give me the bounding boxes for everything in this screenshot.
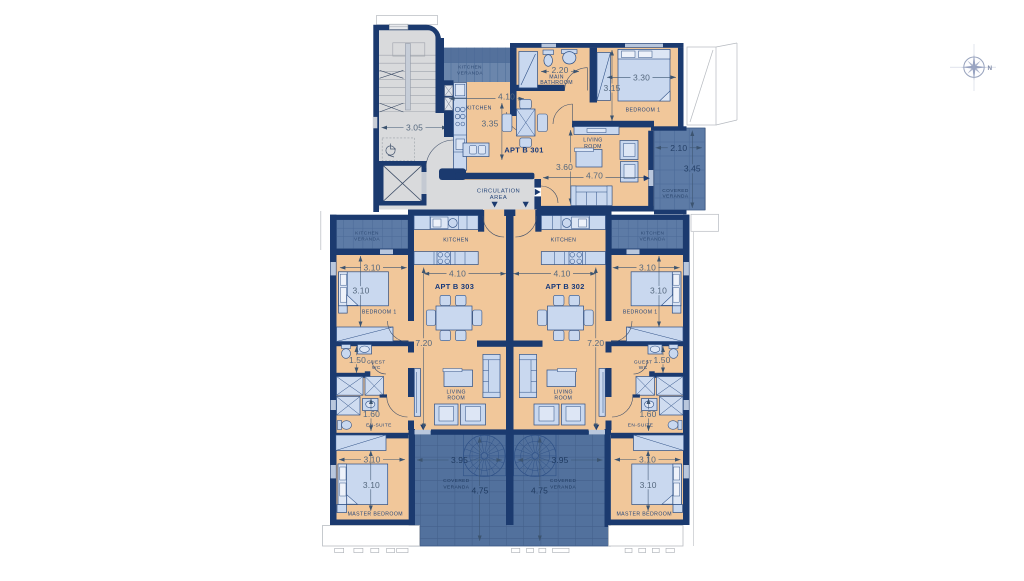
svg-text:VERANDA: VERANDA: [443, 484, 469, 490]
svg-text:MASTER BEDROOM: MASTER BEDROOM: [348, 511, 403, 517]
svg-text:BEDROOM 1: BEDROOM 1: [362, 310, 397, 316]
svg-text:N: N: [988, 65, 993, 72]
svg-text:3.10: 3.10: [650, 286, 667, 296]
svg-text:KITCHEN: KITCHEN: [641, 231, 665, 237]
svg-text:COVERED: COVERED: [443, 478, 470, 484]
svg-text:VERANDA: VERANDA: [354, 237, 380, 243]
svg-text:KITCHEN: KITCHEN: [458, 64, 482, 70]
svg-text:APT B 302: APT B 302: [545, 282, 584, 291]
svg-text:3.10: 3.10: [639, 263, 656, 273]
svg-text:4.10: 4.10: [498, 92, 515, 102]
svg-text:GUEST: GUEST: [634, 359, 653, 365]
svg-text:LIVING: LIVING: [554, 389, 573, 395]
svg-text:COVERED: COVERED: [550, 478, 577, 484]
svg-text:3.10: 3.10: [364, 455, 381, 465]
svg-text:APT B 303: APT B 303: [435, 282, 474, 291]
svg-text:1.50: 1.50: [349, 355, 366, 365]
svg-text:3.30: 3.30: [633, 72, 650, 82]
svg-text:2.10: 2.10: [670, 143, 687, 153]
svg-text:BEDROOM 1: BEDROOM 1: [623, 310, 658, 316]
svg-text:3.95: 3.95: [552, 455, 569, 465]
svg-text:3.10: 3.10: [363, 480, 380, 490]
svg-text:VERANDA: VERANDA: [457, 70, 483, 76]
svg-text:1.50: 1.50: [654, 355, 671, 365]
svg-text:7.20: 7.20: [415, 338, 432, 348]
svg-text:4.75: 4.75: [531, 485, 548, 495]
svg-text:APT B 301: APT B 301: [504, 146, 543, 155]
svg-text:COVERED: COVERED: [662, 188, 689, 194]
svg-text:VERANDA: VERANDA: [550, 484, 576, 490]
svg-text:3.10: 3.10: [353, 286, 370, 296]
svg-text:4.75: 4.75: [472, 485, 489, 495]
svg-text:3.60: 3.60: [556, 162, 573, 172]
svg-text:2.20: 2.20: [552, 65, 569, 75]
svg-text:BEDROOM 1: BEDROOM 1: [626, 107, 661, 113]
svg-text:3.05: 3.05: [406, 123, 423, 133]
svg-text:LIVING: LIVING: [446, 389, 465, 395]
svg-text:3.45: 3.45: [684, 164, 701, 174]
svg-text:3.95: 3.95: [451, 455, 468, 465]
svg-text:ROOM: ROOM: [554, 396, 572, 402]
svg-text:ROOM: ROOM: [447, 396, 465, 402]
svg-text:WC: WC: [639, 365, 648, 371]
svg-text:BATHROOM: BATHROOM: [540, 80, 573, 86]
svg-text:EN-SUITE: EN-SUITE: [628, 423, 654, 429]
svg-text:4.10: 4.10: [554, 269, 571, 279]
svg-text:MASTER BEDROOM: MASTER BEDROOM: [616, 511, 671, 517]
svg-text:KITCHEN: KITCHEN: [551, 238, 577, 244]
svg-text:KITCHEN: KITCHEN: [443, 238, 469, 244]
svg-text:3.10: 3.10: [364, 263, 381, 273]
svg-text:AREA: AREA: [490, 195, 507, 201]
svg-text:KITCHEN: KITCHEN: [466, 106, 492, 112]
svg-text:3.35: 3.35: [482, 119, 499, 129]
svg-text:3.15: 3.15: [604, 83, 621, 93]
svg-text:7.20: 7.20: [587, 338, 604, 348]
svg-text:1.60: 1.60: [363, 409, 380, 419]
svg-text:3.10: 3.10: [640, 480, 657, 490]
svg-text:GUEST: GUEST: [367, 359, 386, 365]
svg-text:4.10: 4.10: [449, 269, 466, 279]
svg-text:KITCHEN: KITCHEN: [355, 231, 379, 237]
svg-text:1.60: 1.60: [640, 409, 657, 419]
svg-text:3.10: 3.10: [639, 455, 656, 465]
svg-text:LIVING: LIVING: [583, 138, 602, 144]
svg-text:4.70: 4.70: [586, 171, 603, 181]
svg-text:WC: WC: [372, 365, 381, 371]
svg-text:VERANDA: VERANDA: [663, 194, 689, 200]
svg-text:CIRCULATION: CIRCULATION: [477, 189, 520, 195]
svg-text:EN-SUITE: EN-SUITE: [366, 423, 392, 429]
svg-text:VERANDA: VERANDA: [640, 237, 666, 243]
